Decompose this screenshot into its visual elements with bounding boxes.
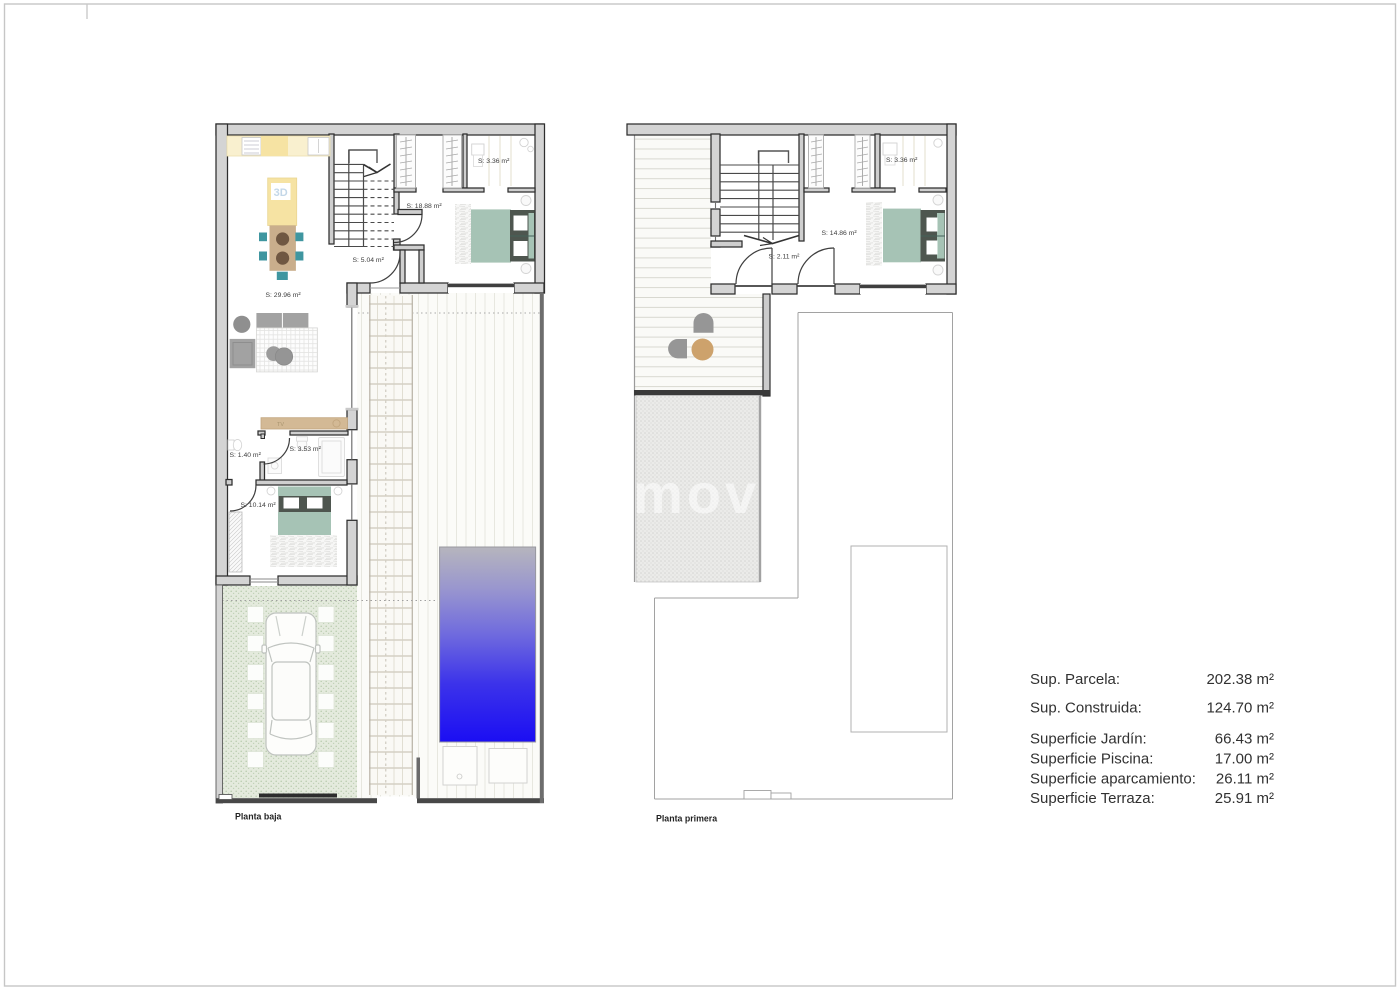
svg-text:26.11 m²: 26.11 m²: [1216, 771, 1274, 788]
svg-text:Superficie Piscina:: Superficie Piscina:: [1030, 751, 1153, 768]
svg-text:S: 3.36 m²: S: 3.36 m²: [886, 157, 918, 164]
svg-text:Superficie Terraza:: Superficie Terraza:: [1030, 790, 1155, 807]
svg-text:S: 29.96 m²: S: 29.96 m²: [266, 292, 302, 299]
svg-text:124.70 m²: 124.70 m²: [1206, 700, 1274, 717]
svg-text:S: 5.04 m²: S: 5.04 m²: [353, 257, 385, 264]
svg-text:S: 3.36 m²: S: 3.36 m²: [478, 158, 510, 165]
svg-text:S: 1.40 m²: S: 1.40 m²: [230, 452, 262, 459]
svg-text:Planta primera: Planta primera: [656, 814, 717, 824]
svg-text:S: 10.14 m²: S: 10.14 m²: [241, 502, 277, 509]
svg-text:S: 18.88 m²: S: 18.88 m²: [407, 203, 443, 210]
svg-text:202.38 m²: 202.38 m²: [1206, 671, 1274, 688]
svg-text:Superficie aparcamiento:: Superficie aparcamiento:: [1030, 771, 1196, 788]
svg-text:Superficie Jardín:: Superficie Jardín:: [1030, 731, 1147, 748]
svg-text:3D: 3D: [274, 187, 288, 199]
svg-text:Sup. Parcela:: Sup. Parcela:: [1030, 671, 1120, 688]
svg-text:S: 14.86 m²: S: 14.86 m²: [822, 230, 858, 237]
svg-text:S: 2.11 m²: S: 2.11 m²: [769, 254, 801, 261]
svg-text:66.43 m²: 66.43 m²: [1215, 731, 1274, 748]
svg-text:S: 3.53 m²: S: 3.53 m²: [290, 446, 322, 453]
svg-text:Planta baja: Planta baja: [235, 812, 282, 822]
svg-text:TV: TV: [277, 422, 284, 428]
svg-text:17.00 m²: 17.00 m²: [1215, 751, 1274, 768]
svg-text:25.91 m²: 25.91 m²: [1215, 790, 1274, 807]
svg-text:Sup. Construida:: Sup. Construida:: [1030, 700, 1142, 717]
svg-text:mov: mov: [633, 462, 760, 525]
